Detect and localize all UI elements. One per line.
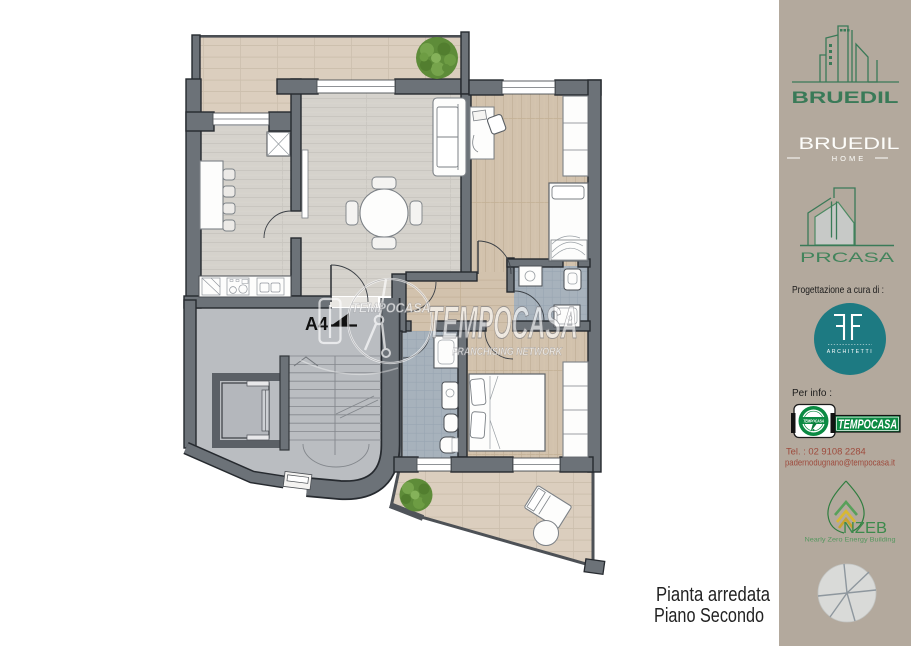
svg-text:Nearly Zero Energy Building: Nearly Zero Energy Building <box>805 538 896 544</box>
svg-text:TEMPOCASA: TEMPOCASA <box>352 301 431 316</box>
svg-text:FRANCHISING NETWORK: FRANCHISING NETWORK <box>452 346 563 358</box>
svg-text:Progettazione a cura di :: Progettazione a cura di : <box>792 285 884 296</box>
svg-text:ARCHITETTI: ARCHITETTI <box>827 349 874 355</box>
svg-text:Piano Secondo: Piano Secondo <box>654 605 764 627</box>
svg-text:TEMPOCASA: TEMPOCASA <box>428 297 578 348</box>
svg-text:PRCASA: PRCASA <box>800 249 895 265</box>
svg-text:BRUEDIL: BRUEDIL <box>799 134 900 153</box>
svg-text:A4: A4 <box>305 314 328 334</box>
svg-text:BRUEDIL: BRUEDIL <box>792 88 899 107</box>
svg-text:Tel. : 02 9108 2284: Tel. : 02 9108 2284 <box>786 446 866 457</box>
svg-text:TEMPOCASA: TEMPOCASA <box>838 417 897 431</box>
svg-text:padernodugnano@tempocasa.it: padernodugnano@tempocasa.it <box>785 457 895 468</box>
svg-text:Per info :: Per info : <box>792 388 832 399</box>
svg-text:NZEB: NZEB <box>843 520 887 537</box>
svg-text:HOME: HOME <box>832 154 867 163</box>
svg-text:Pianta arredata: Pianta arredata <box>656 584 771 606</box>
